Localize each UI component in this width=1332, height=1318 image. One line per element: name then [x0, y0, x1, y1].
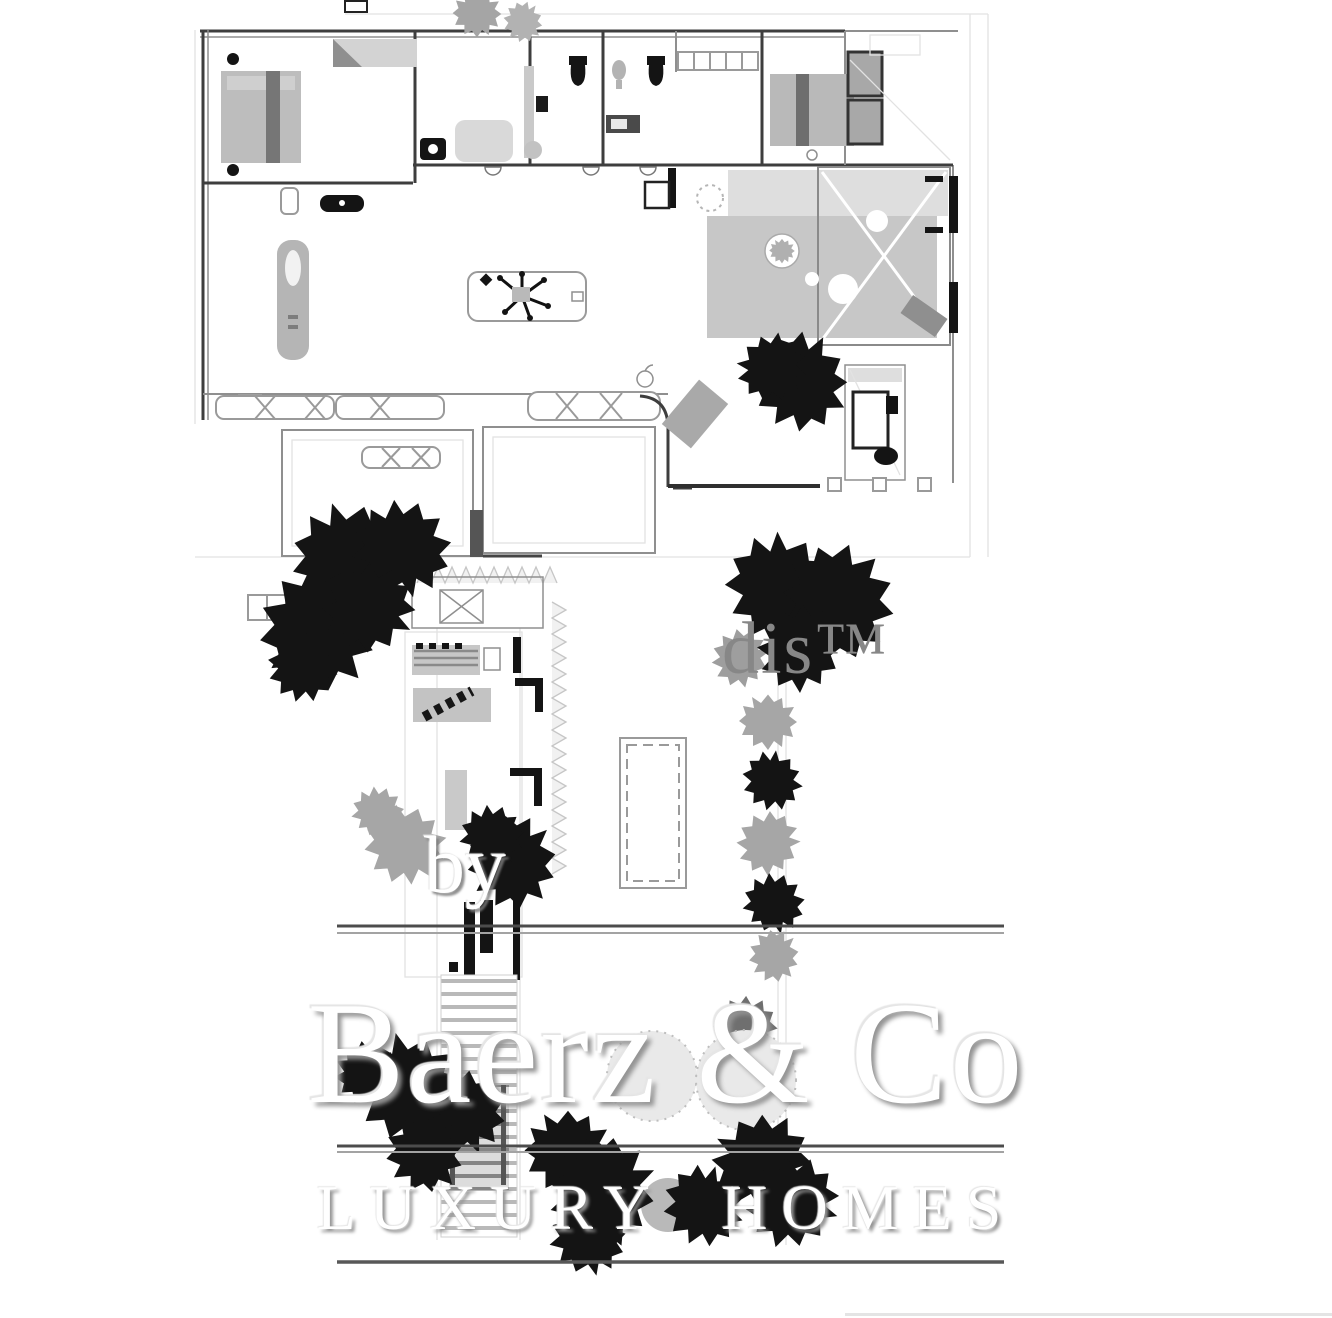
pool: [413, 688, 491, 722]
bedroom1: [221, 39, 417, 214]
dashed-plant: [697, 185, 723, 211]
bathrooms: [420, 56, 665, 162]
pool-cabana: [405, 577, 543, 980]
bedroom2: [770, 35, 950, 160]
chair: [281, 188, 298, 214]
outdoor-sofa: [362, 447, 440, 468]
floor-plan-drawing: [0, 0, 1332, 1318]
slat-bench: [412, 643, 500, 675]
sofa-band: [216, 392, 660, 420]
shower-patio: [645, 167, 958, 345]
bedside-lamp-icon: [227, 164, 239, 176]
toilet-icon: [569, 56, 587, 86]
sink-icon: [612, 60, 626, 80]
tree-gray-understory: [345, 621, 776, 896]
tree-pool-path: [452, 796, 564, 915]
shrub-column: [702, 695, 814, 1070]
lounger: [662, 380, 728, 449]
decor-apple-icon: [637, 365, 653, 387]
dining-table: [468, 271, 586, 321]
toilet-icon: [647, 56, 665, 86]
closet-row: [678, 52, 758, 70]
bedside-lamp-icon: [227, 53, 239, 65]
desk-square: [848, 100, 882, 144]
trees-black: [250, 316, 911, 1285]
floor-plan-page: dis™ by Baerz & Co LUXURY HOMES: [0, 0, 1332, 1318]
bed2: [770, 74, 854, 146]
door-openings: [485, 167, 656, 175]
pergola: [620, 738, 686, 888]
desk-square: [848, 52, 882, 96]
bottom-edge-artifact: [845, 1313, 1332, 1316]
